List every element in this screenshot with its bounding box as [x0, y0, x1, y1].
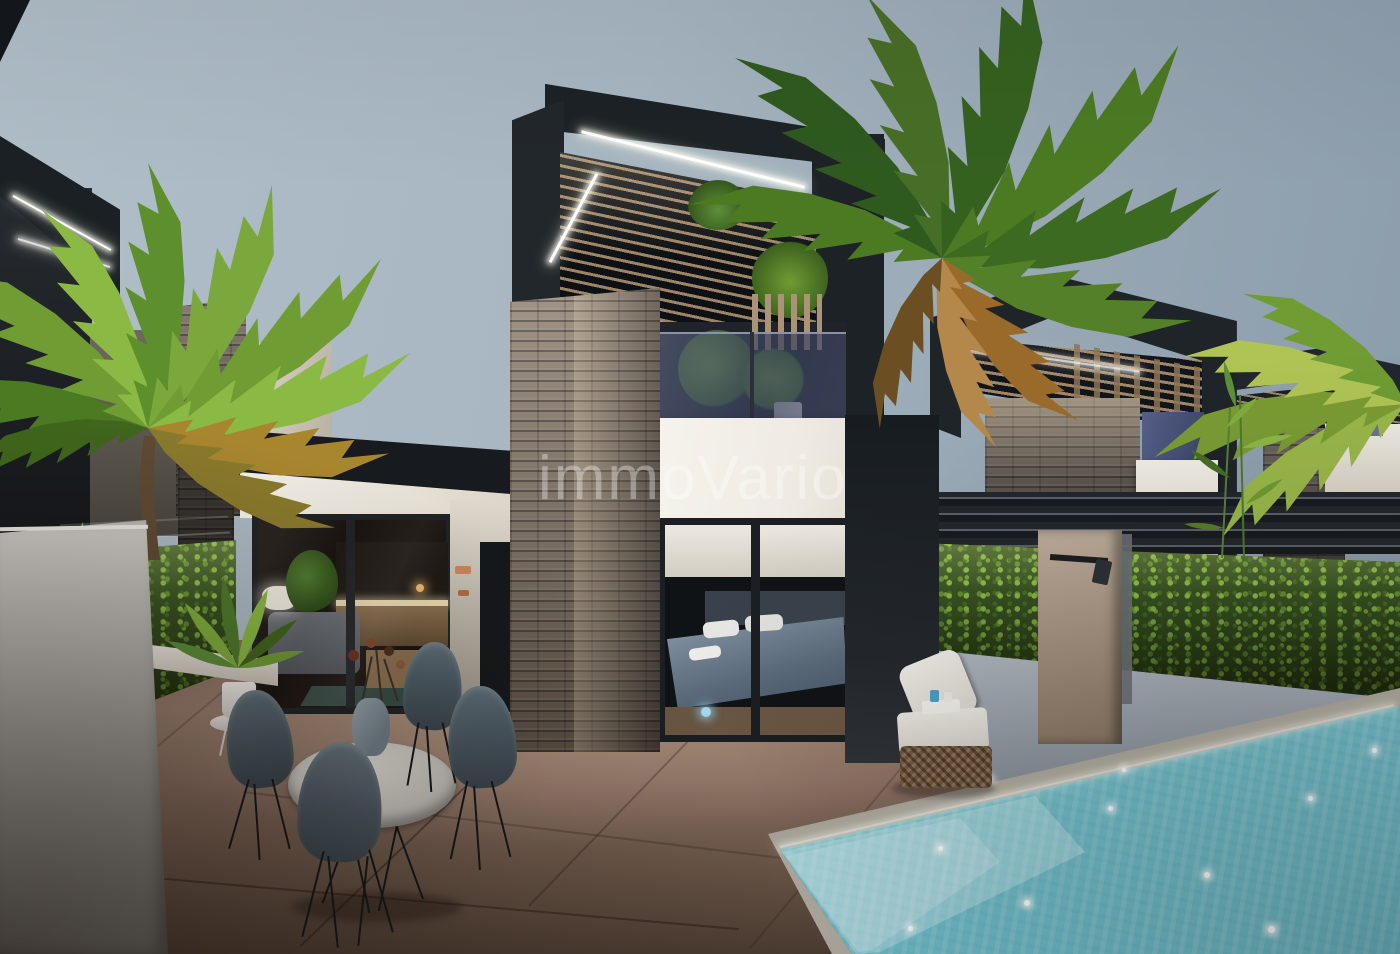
villa2-stone-light [985, 398, 1140, 478]
villa-render-image: immoVario [0, 0, 1400, 954]
tile-grout-line [141, 876, 739, 930]
watermark-text: immoVario [538, 443, 848, 514]
neighbor-villa-3 [1225, 348, 1400, 668]
neighbor-villa-2 [930, 270, 1250, 690]
villa2-balcony-box [1136, 460, 1218, 600]
villa3-glass [1331, 406, 1383, 436]
villa3-balcony-box [1325, 424, 1400, 524]
